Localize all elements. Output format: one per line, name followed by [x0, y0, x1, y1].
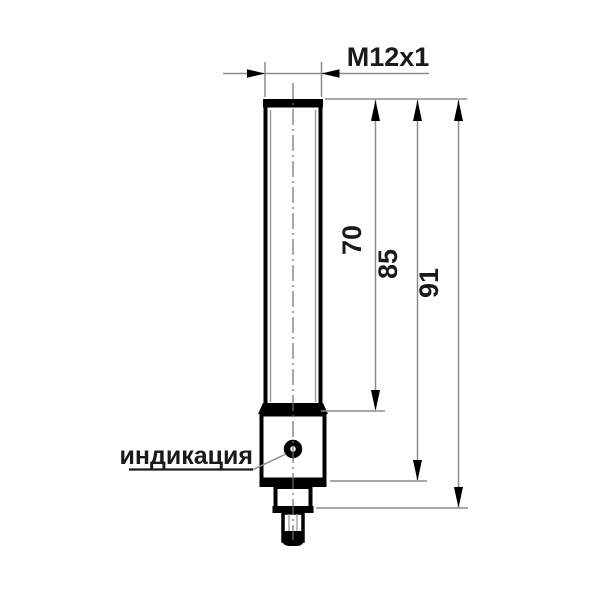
technical-drawing-canvas: M12x1 70 85 91 индикация	[0, 0, 600, 600]
sensor-body	[258, 83, 328, 546]
arrowhead-91-down	[454, 487, 463, 508]
dimension-label-70: 70	[337, 225, 367, 255]
thread-label: M12x1	[347, 42, 430, 72]
arrowhead-85-down	[413, 460, 422, 481]
arrowhead-70-up	[371, 100, 380, 121]
arrowhead-91-up	[454, 100, 463, 121]
arrowhead-right	[322, 69, 340, 77]
drawing-page: M12x1 70 85 91 индикация	[0, 0, 600, 600]
arrowhead-85-up	[413, 100, 422, 121]
arrowhead-70-down	[371, 390, 380, 411]
arrowhead-left	[247, 69, 265, 77]
length-dimensions: 70 85 91	[316, 99, 468, 508]
dimension-label-91: 91	[414, 268, 444, 298]
dimension-label-85: 85	[373, 249, 403, 279]
indication-label: индикация	[120, 442, 253, 470]
thread-dimension: M12x1	[223, 42, 429, 97]
